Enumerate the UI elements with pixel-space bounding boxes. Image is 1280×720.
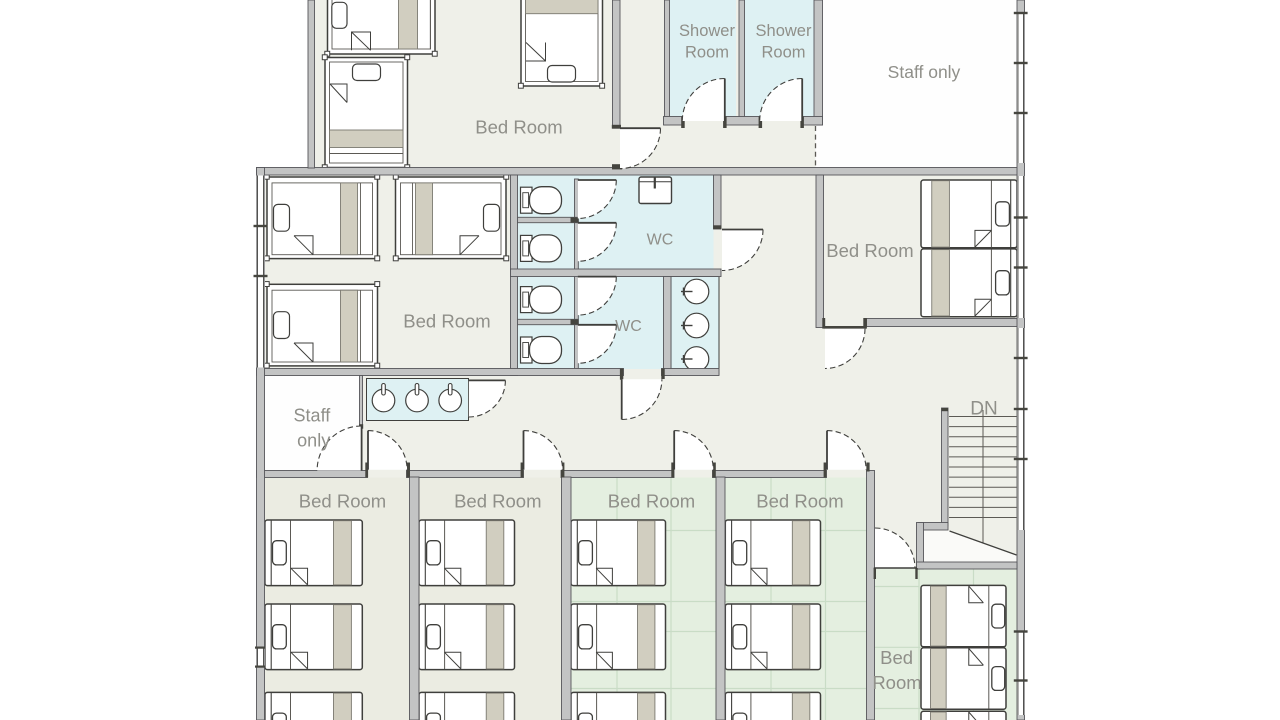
svg-text:Room: Room <box>872 672 921 693</box>
svg-text:Room: Room <box>685 43 729 61</box>
svg-text:Staff: Staff <box>294 405 332 425</box>
svg-text:Shower: Shower <box>679 22 735 40</box>
svg-text:Shower: Shower <box>756 22 812 40</box>
svg-text:Staff only: Staff only <box>888 62 961 82</box>
svg-text:Bed Room: Bed Room <box>475 117 562 138</box>
svg-text:Bed Room: Bed Room <box>299 491 386 512</box>
svg-text:WC: WC <box>615 318 642 335</box>
svg-text:Room: Room <box>761 43 805 61</box>
svg-text:Bed Room: Bed Room <box>826 240 913 261</box>
svg-text:Bed: Bed <box>880 647 913 668</box>
svg-text:Bed Room: Bed Room <box>608 491 695 512</box>
svg-text:WC: WC <box>647 232 674 249</box>
svg-text:Bed Room: Bed Room <box>454 491 541 512</box>
svg-text:Bed Room: Bed Room <box>403 311 490 332</box>
svg-text:only: only <box>297 430 330 450</box>
svg-text:Bed Room: Bed Room <box>756 491 843 512</box>
svg-text:DN: DN <box>970 399 997 420</box>
